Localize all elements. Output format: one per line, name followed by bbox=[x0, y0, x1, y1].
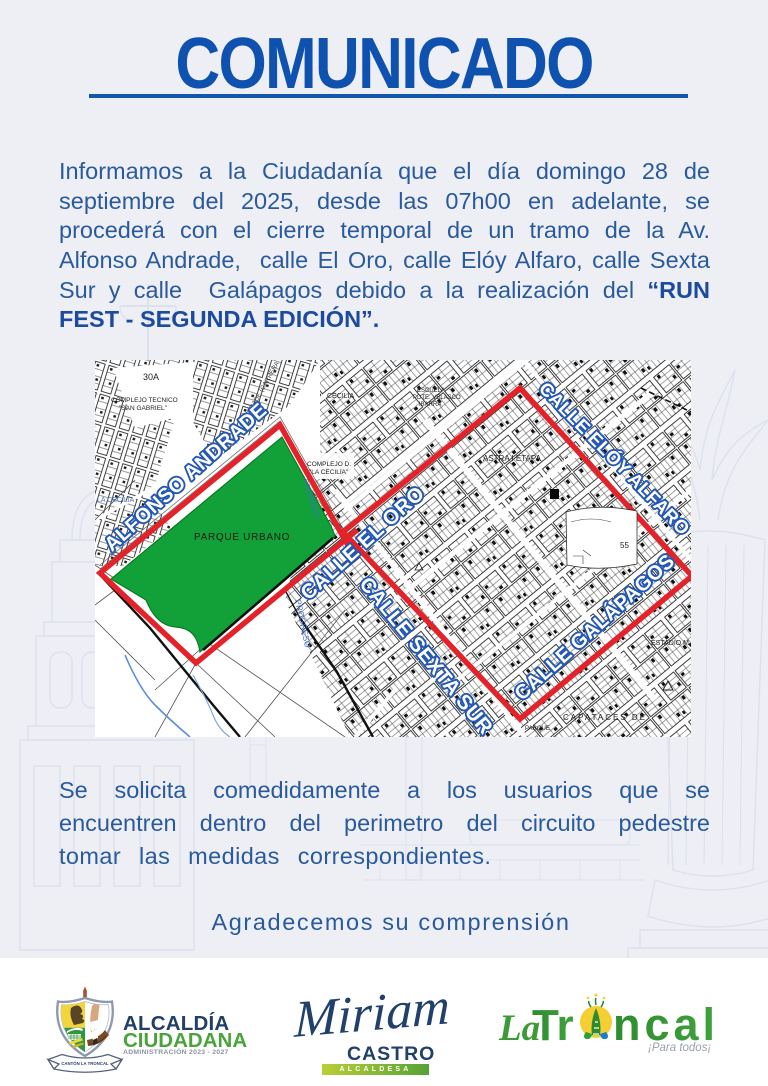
svg-text:"LA CECILIA": "LA CECILIA" bbox=[309, 469, 349, 476]
svg-text:COMPLEJO D.: COMPLEJO D. bbox=[307, 461, 351, 468]
svg-text:ESCUELA: ESCUELA bbox=[417, 388, 445, 394]
svg-text:ESTADIO M: ESTADIO M bbox=[651, 640, 689, 647]
svg-text:55: 55 bbox=[620, 541, 629, 550]
svg-text:PDTE. VELASCO: PDTE. VELASCO bbox=[413, 395, 461, 401]
svg-text:COMPLEJO TECNICO: COMPLEJO TECNICO bbox=[111, 397, 178, 404]
svg-text:LA CECILIA: LA CECILIA bbox=[97, 497, 135, 504]
svg-text:CECILIA: CECILIA bbox=[327, 393, 355, 400]
svg-text:ASTRA I ETAPA: ASTRA I ETAPA bbox=[483, 454, 542, 463]
svg-text:CANTÓN LA TRONCAL: CANTÓN LA TRONCAL bbox=[61, 1061, 109, 1066]
svg-text:CAPATACES DE: CAPATACES DE bbox=[563, 713, 647, 722]
svg-text:30A: 30A bbox=[143, 372, 159, 382]
svg-text:PARQUE URBANO: PARQUE URBANO bbox=[194, 532, 290, 543]
svg-text:IBARRA: IBARRA bbox=[419, 402, 441, 408]
svg-text:PARQUE: PARQUE bbox=[525, 726, 550, 732]
svg-text:Tr: Tr bbox=[532, 1001, 574, 1050]
svg-text:¡Para todos¡: ¡Para todos¡ bbox=[648, 1042, 711, 1054]
svg-text:"SAN GABRIEL": "SAN GABRIEL" bbox=[119, 405, 168, 412]
